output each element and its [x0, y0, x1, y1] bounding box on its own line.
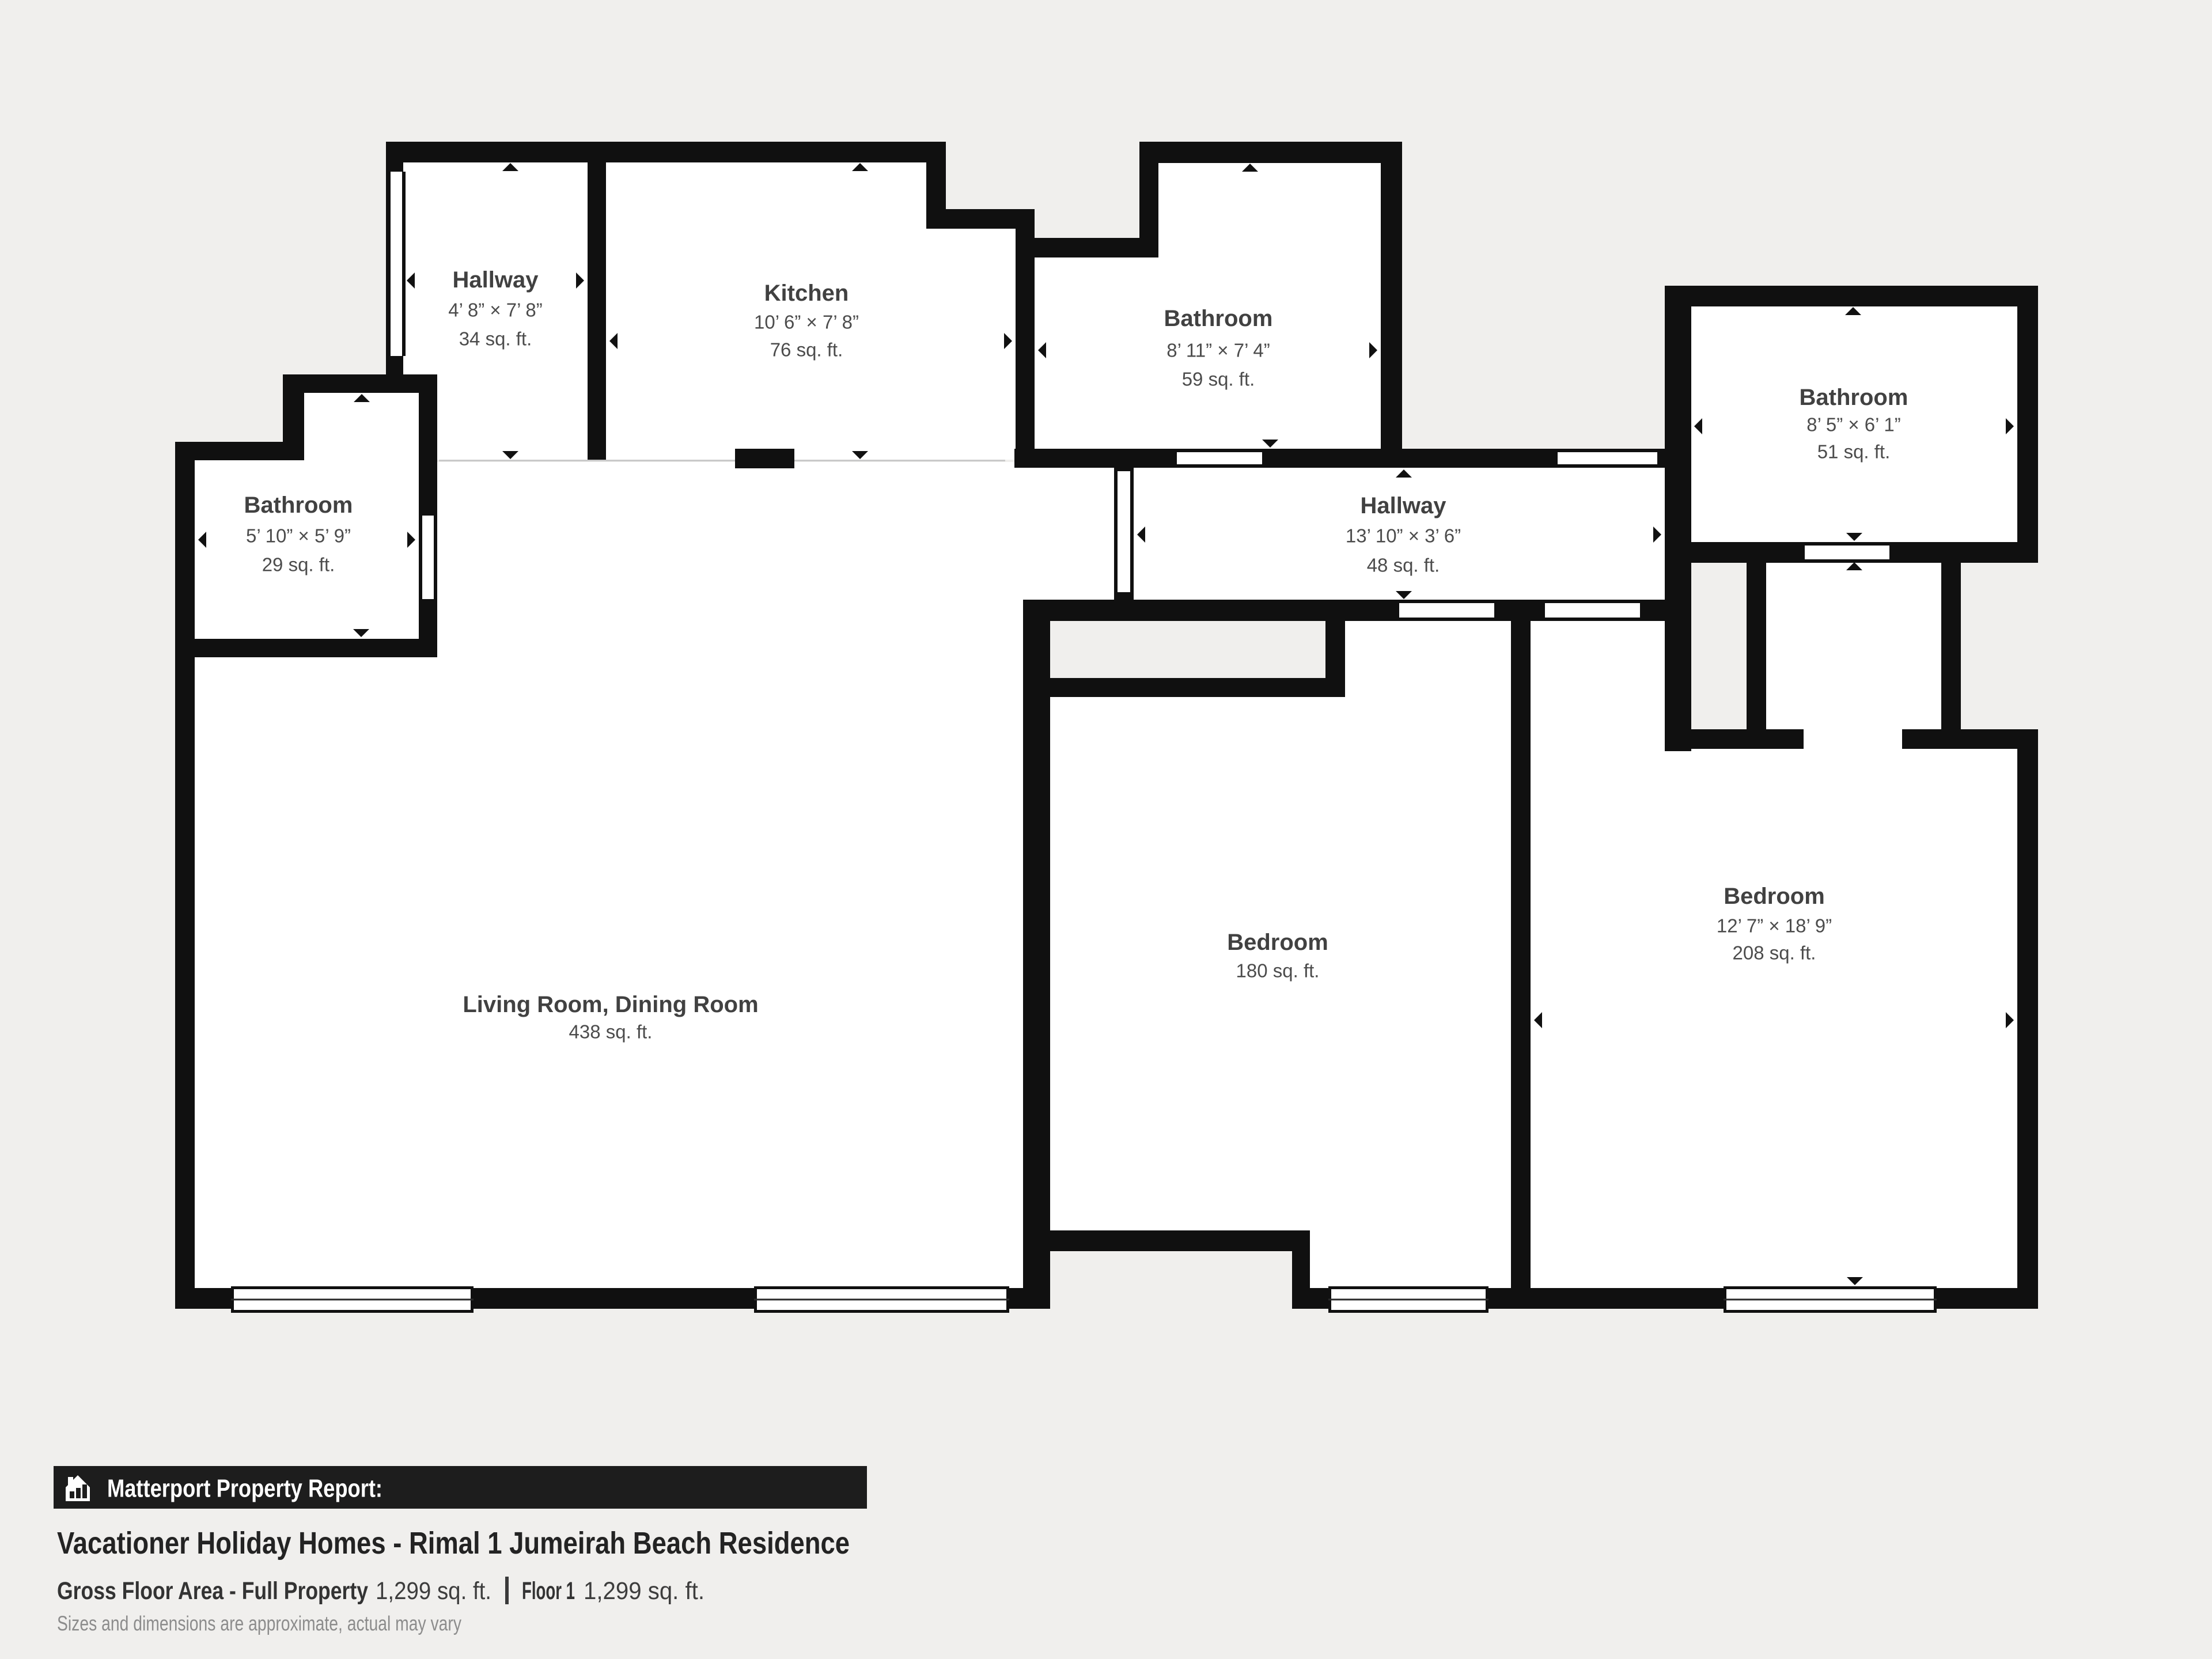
- svg-text:1,299 sq. ft.: 1,299 sq. ft.: [584, 1577, 704, 1605]
- svg-text:180 sq. ft.: 180 sq. ft.: [1236, 960, 1320, 982]
- svg-text:Gross Floor Area - Full Proper: Gross Floor Area - Full Property: [57, 1577, 368, 1605]
- svg-text:1,299 sq. ft.: 1,299 sq. ft.: [376, 1577, 491, 1605]
- svg-text:59 sq. ft.: 59 sq. ft.: [1182, 369, 1255, 390]
- svg-text:Bedroom: Bedroom: [1724, 884, 1825, 909]
- svg-text:Bathroom: Bathroom: [1164, 306, 1273, 331]
- svg-text:Kitchen: Kitchen: [764, 281, 849, 306]
- svg-text:12’ 7” × 18’ 9”: 12’ 7” × 18’ 9”: [1717, 915, 1832, 937]
- svg-text:8’ 5” × 6’ 1”: 8’ 5” × 6’ 1”: [1806, 414, 1901, 435]
- svg-text:Living Room, Dining Room: Living Room, Dining Room: [463, 992, 758, 1017]
- svg-text:Sizes and dimensions are appro: Sizes and dimensions are approximate, ac…: [57, 1612, 461, 1635]
- svg-text:10’ 6” × 7’ 8”: 10’ 6” × 7’ 8”: [754, 312, 859, 333]
- svg-text:5’ 10” × 5’ 9”: 5’ 10” × 5’ 9”: [246, 525, 351, 547]
- svg-text:76 sq. ft.: 76 sq. ft.: [770, 339, 843, 361]
- svg-text:Floor 1: Floor 1: [522, 1577, 575, 1605]
- svg-text:4’ 8” × 7’ 8”: 4’ 8” × 7’ 8”: [448, 300, 543, 321]
- svg-text:8’ 11” × 7’ 4”: 8’ 11” × 7’ 4”: [1166, 340, 1270, 361]
- svg-text:Bedroom: Bedroom: [1227, 930, 1328, 955]
- svg-text:Hallway: Hallway: [1361, 493, 1447, 518]
- svg-text:208 sq. ft.: 208 sq. ft.: [1733, 942, 1816, 964]
- svg-text:13’ 10” × 3’ 6”: 13’ 10” × 3’ 6”: [1346, 525, 1461, 547]
- svg-text:48 sq. ft.: 48 sq. ft.: [1367, 555, 1440, 576]
- svg-text:Bathroom: Bathroom: [244, 493, 353, 518]
- svg-text:51 sq. ft.: 51 sq. ft.: [1817, 441, 1891, 463]
- svg-text:Bathroom: Bathroom: [1800, 385, 1908, 410]
- svg-text:Matterport Property Report:: Matterport Property Report:: [107, 1475, 382, 1503]
- svg-text:Hallway: Hallway: [453, 267, 539, 293]
- svg-text:438 sq. ft.: 438 sq. ft.: [569, 1021, 653, 1043]
- svg-text:34 sq. ft.: 34 sq. ft.: [459, 328, 532, 350]
- svg-text:Vacationer Holiday Homes - Rim: Vacationer Holiday Homes - Rimal 1 Jumei…: [57, 1526, 850, 1560]
- svg-text:29 sq. ft.: 29 sq. ft.: [262, 554, 335, 575]
